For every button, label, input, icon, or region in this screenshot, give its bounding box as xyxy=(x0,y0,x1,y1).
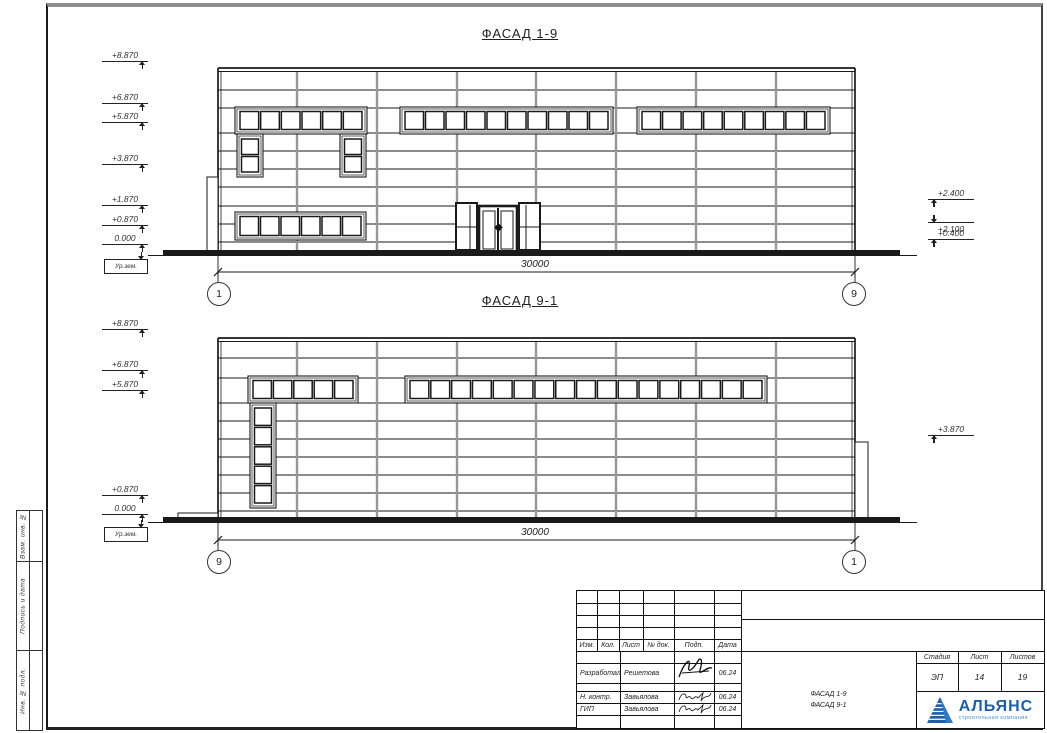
elevation-tick-icon xyxy=(142,371,144,378)
elevation-mark: 0.000 xyxy=(102,232,148,245)
tb-col-list: Лист xyxy=(619,639,643,651)
tb-col-kol: Кол. xyxy=(597,639,619,651)
tb-role: Н. контр. xyxy=(578,691,622,703)
elevation-mark: +6.870 xyxy=(102,358,148,371)
tb-role: ГИП xyxy=(578,703,622,715)
side-strip-cell: Подпись и дата xyxy=(16,561,30,651)
tb-sheets-value: 19 xyxy=(1001,663,1044,691)
elevation-mark: +0.870 xyxy=(102,483,148,496)
elevation-tick-icon xyxy=(141,520,143,527)
company-name: АЛЬЯНС xyxy=(959,698,1033,716)
side-strip-label: Взам. инв. № xyxy=(17,511,29,561)
tb-doc-title: ФАСАД 1-9 ФАСАД 9-1 xyxy=(741,679,916,721)
elevation-mark: +6.870 xyxy=(102,91,148,104)
tb-col-izm: Изм. xyxy=(577,639,597,651)
side-strip-label: Инв. № подл. xyxy=(17,651,29,730)
signature-icon xyxy=(676,653,714,683)
elevation-tick-icon xyxy=(933,240,935,247)
company-logo: АЛЬЯНС строительная компания xyxy=(916,691,1044,728)
axis-marker-left-f2: 9 xyxy=(207,550,231,574)
side-strip-cell xyxy=(29,510,43,562)
tb-stage-value: ЭП xyxy=(916,663,958,691)
tb-role: Разработал xyxy=(578,663,622,683)
elevation-tick-icon xyxy=(142,330,144,337)
tb-col-ndok: № док. xyxy=(643,639,674,651)
elevation-mark: +3.870 xyxy=(102,152,148,165)
elevation-tick-icon xyxy=(933,436,935,443)
elevation-tick-icon xyxy=(142,165,144,172)
tb-date: 06.24 xyxy=(714,703,741,715)
facade-1-9-title: ФАСАД 1-9 xyxy=(380,26,660,41)
signature-icon xyxy=(677,702,713,716)
elevation-tick-icon xyxy=(933,215,935,222)
tb-col-data: Дата xyxy=(714,639,741,651)
pyramid-logo-icon xyxy=(927,696,953,724)
elevation-mark: +5.870 xyxy=(102,110,148,123)
tb-stage-label: Стадия xyxy=(916,651,958,663)
elevation-mark: +1.870 xyxy=(102,193,148,206)
axis-marker-right-f1: 9 xyxy=(842,282,866,306)
side-strip-cell xyxy=(29,561,43,651)
axis-marker-left-f1: 1 xyxy=(207,282,231,306)
elevation-tick-icon xyxy=(933,200,935,207)
elevation-tick-icon xyxy=(142,245,144,252)
tb-name: Решетова xyxy=(622,663,674,683)
elevation-mark: +5.870 xyxy=(102,378,148,391)
elevation-tick-icon xyxy=(142,123,144,130)
elevation-mark: +8.870 xyxy=(102,317,148,330)
elevation-tick-icon xyxy=(142,206,144,213)
company-subtitle: строительная компания xyxy=(959,715,1028,721)
ground-level-mark: Ур.зем. xyxy=(104,259,148,274)
tb-sheets-label: Листов xyxy=(1001,651,1044,663)
dimension-label: 30000 xyxy=(480,527,590,538)
tb-sheet-value: 14 xyxy=(958,663,1001,691)
elevation-mark: +8.870 xyxy=(102,49,148,62)
tb-name: Завьялова xyxy=(622,703,674,715)
side-strip-cell xyxy=(29,650,43,731)
ground-level-mark: Ур.зем. xyxy=(104,527,148,542)
tb-date: 06.24 xyxy=(714,663,741,683)
tb-sheet-label: Лист xyxy=(958,651,1001,663)
axis-marker-right-f2: 1 xyxy=(842,550,866,574)
side-strip-label: Подпись и дата xyxy=(17,562,29,650)
elevation-mark: +3.870 xyxy=(928,423,974,436)
elevation-mark: +2.400 xyxy=(928,187,974,200)
tb-date: 06.24 xyxy=(714,691,741,703)
elevation-mark: +0.400 xyxy=(928,227,974,240)
dimension-label: 30000 xyxy=(480,259,590,270)
elevation-mark: +0.870 xyxy=(102,213,148,226)
drawing-sheet: ФАСАД 1-9 ФАСАД 9-1 +8.870 +6.870 +5.870… xyxy=(0,0,1047,733)
tb-col-podp: Подп. xyxy=(674,639,714,651)
elevation-mark: 0.000 xyxy=(102,502,148,515)
side-strip-cell: Инв. № подл. xyxy=(16,650,30,731)
title-block: Изм. Кол. Лист № док. Подп. Дата Разрабо… xyxy=(576,590,1045,729)
elevation-tick-icon xyxy=(142,62,144,69)
tb-name: Завьялова xyxy=(622,691,674,703)
facade-9-1-title: ФАСАД 9-1 xyxy=(380,293,660,308)
elevation-tick-icon xyxy=(142,391,144,398)
side-strip-cell: Взам. инв. № xyxy=(16,510,30,562)
elevation-tick-icon xyxy=(141,252,143,259)
